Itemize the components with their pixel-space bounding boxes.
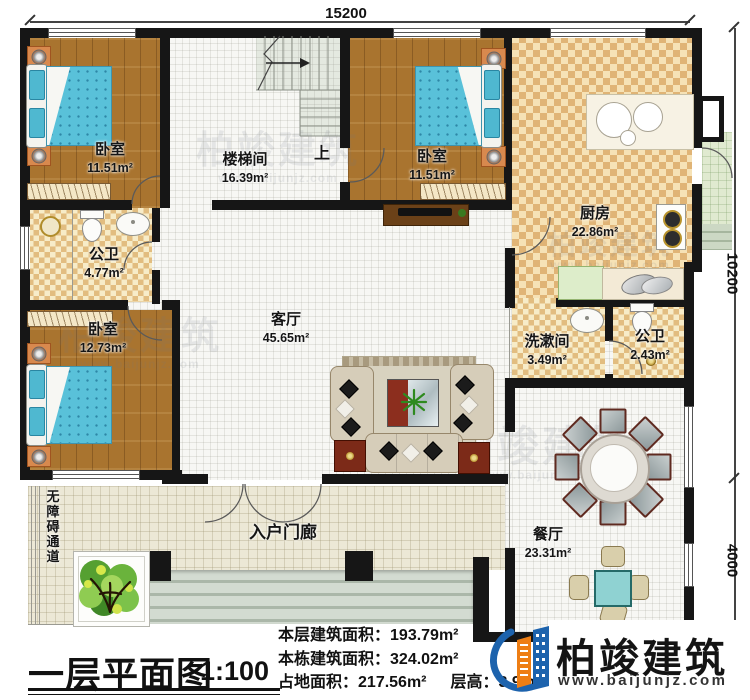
room-label-bath-1: 公卫4.77m² [84,245,124,281]
plant-icon [402,390,426,414]
room-label-porch: 入户门廊 [249,522,317,544]
door-arc [128,306,162,340]
room-label-dining: 餐厅23.31m² [525,525,572,561]
entrance-door-arc [283,484,321,522]
stair-treads [256,36,340,136]
dim-top: 15200 [316,5,376,22]
tree-icon [79,560,139,616]
stair-arrow-head-icon [300,58,310,68]
room-label-living: 客厅45.65m² [263,310,310,346]
stair-up-label: 上 [314,145,330,166]
door-arc [702,148,732,178]
title-underline [28,688,280,691]
room-label-bedroom-3: 卧室12.73m² [80,320,127,356]
room-label-ramp: 无障碍通道 [43,490,60,565]
door-arc [132,176,160,204]
dim-line-top [30,21,690,23]
entrance-door-arc [245,484,283,522]
brand-website: www.baijunjz.com [558,672,727,689]
brand-logo-icon [487,618,555,698]
room-label-bedroom-2: 卧室11.51m² [409,147,455,183]
title-underline-2 [28,694,280,695]
room-label-stairwell: 楼梯间16.39m² [222,150,269,186]
room-label-bedroom-1: 卧室11.51m² [87,140,133,176]
door-arc [124,242,152,270]
plan-scale: 1:100 [200,656,269,687]
dim-right-lower: 4000 [724,543,741,579]
room-label-kitchen: 厨房22.86m² [572,204,619,240]
room-label-washroom: 洗漱间3.49m² [524,332,569,368]
entrance-door-arc [205,484,243,522]
door-arc [512,217,550,255]
room-label-bath-2: 公卫2.43m² [630,327,670,363]
dim-right-upper: 10200 [724,252,741,296]
door-arc [350,148,384,182]
floorplan-canvas: 柏竣建筑 www.baijunjz.com 柏竣建筑 www.baijunjz.… [0,0,750,700]
